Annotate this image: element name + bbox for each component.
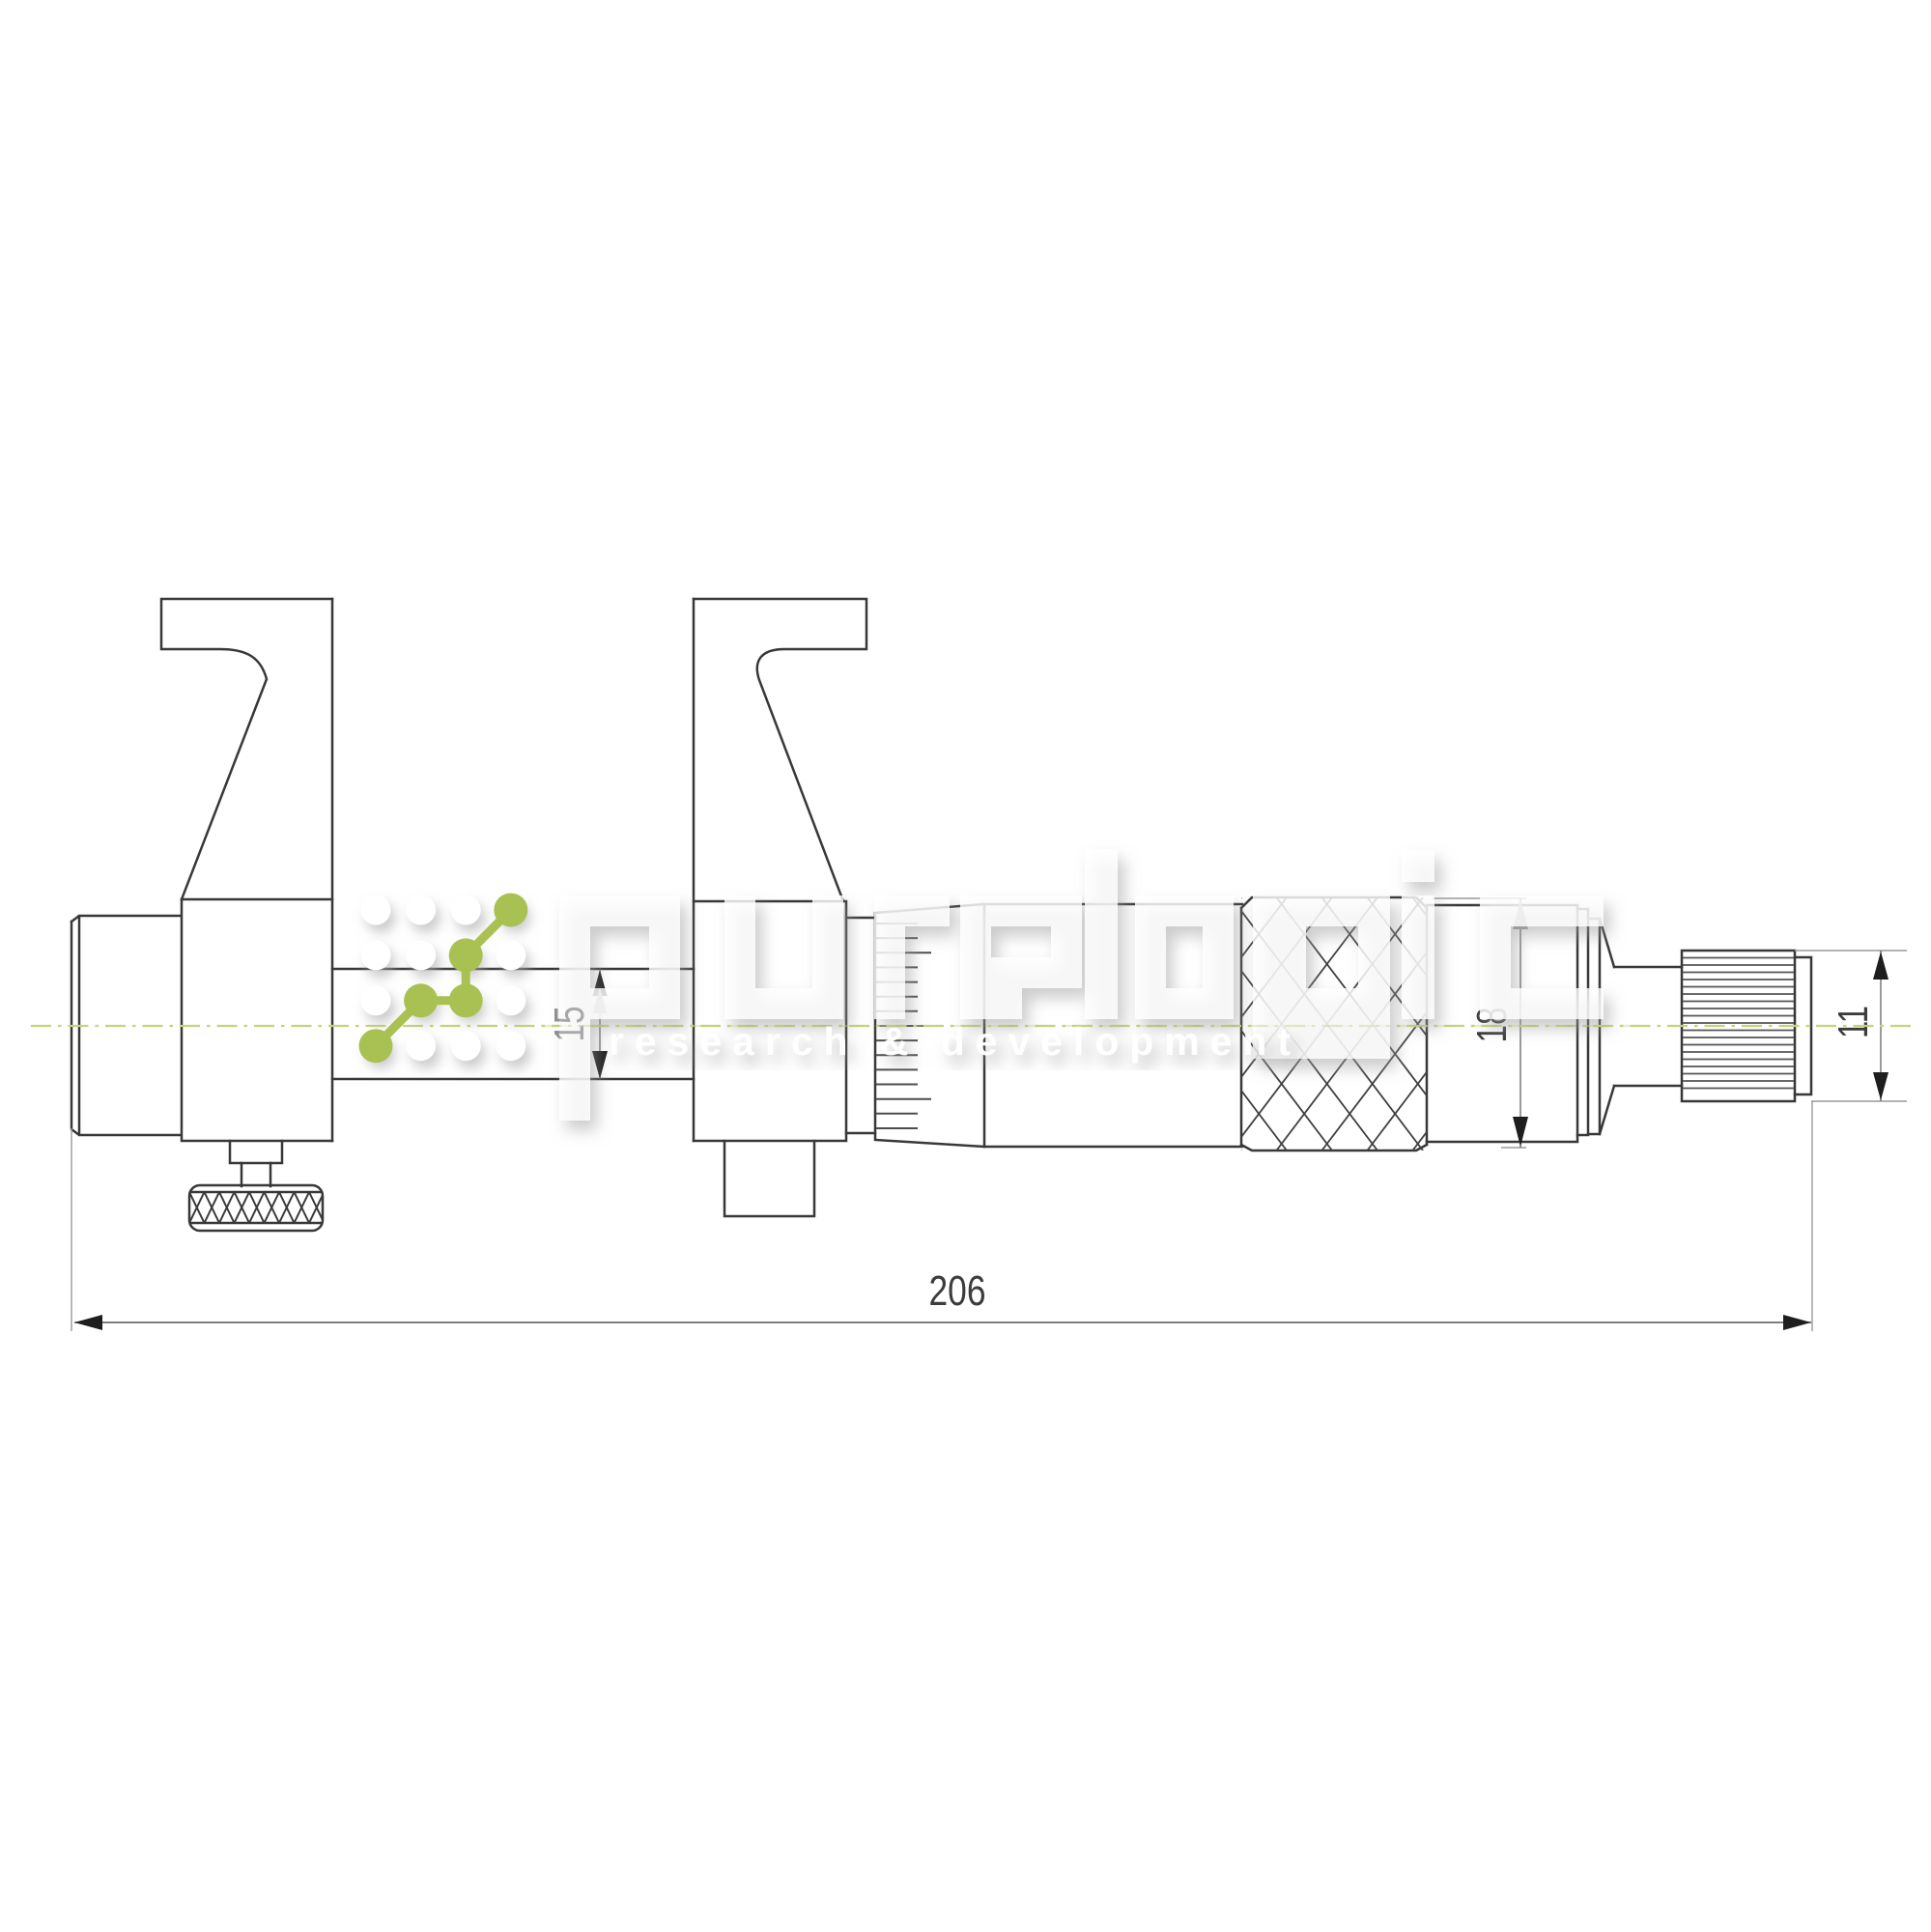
svg-text:15: 15 bbox=[546, 1007, 593, 1042]
svg-text:206: 206 bbox=[929, 1267, 986, 1315]
svg-text:11: 11 bbox=[1830, 1006, 1877, 1038]
